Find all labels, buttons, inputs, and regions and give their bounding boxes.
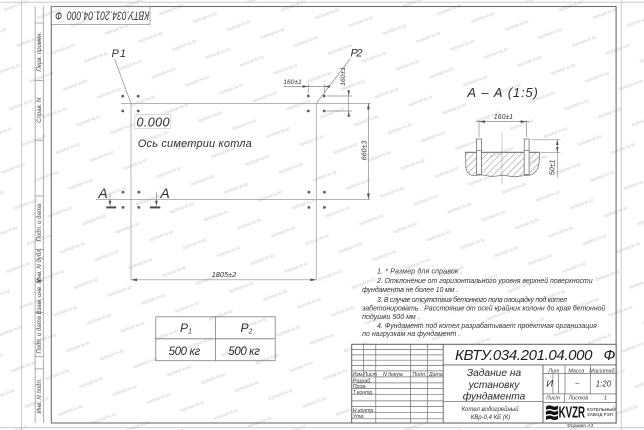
svg-text:фундамента: фундамента — [463, 391, 526, 403]
svg-text:660±3: 660±3 — [362, 141, 369, 161]
svg-text:KVZR: KVZR — [559, 405, 586, 422]
svg-text:Листов: Листов — [568, 396, 589, 402]
svg-text:Перв. примен.: Перв. примен. — [37, 32, 43, 72]
svg-text:Инв. N дубл.: Инв. N дубл. — [37, 248, 43, 283]
svg-text:А: А — [97, 185, 107, 201]
svg-text:P2: P2 — [351, 48, 363, 60]
svg-text:установку: установку — [468, 380, 521, 391]
svg-text:Подп. и дата: Подп. и дата — [37, 315, 43, 353]
svg-text:И: И — [546, 379, 553, 390]
svg-text:Котел водогрейный: Котел водогрейный — [461, 406, 519, 413]
svg-text:Подп. и дата: Подп. и дата — [37, 203, 43, 241]
svg-text:Лит: Лит — [547, 368, 560, 374]
svg-text:Пров.: Пров. — [353, 384, 367, 390]
svg-text:Утв.: Утв. — [353, 414, 365, 420]
svg-text:50±1: 50±1 — [550, 159, 557, 175]
svg-text:Взам. инв. N: Взам. инв. N — [37, 279, 43, 315]
svg-text:160±1: 160±1 — [283, 79, 302, 86]
svg-text:Задание на: Задание на — [467, 368, 522, 379]
svg-text:по нагрузкам на фундамент .: по нагрузкам на фундамент . — [362, 330, 460, 338]
svg-text:КВТУ.034.201.04.000 Ф: КВТУ.034.201.04.000 Ф — [55, 9, 149, 23]
svg-text:1: 1 — [604, 396, 607, 402]
svg-text:подушки 500 мм .: подушки 500 мм . — [362, 313, 420, 321]
svg-text:А: А — [159, 185, 169, 201]
svg-text:Ось симетрии котла: Ось симетрии котла — [138, 138, 252, 150]
svg-text:Лист: Лист — [545, 396, 560, 402]
svg-text:А – А (1:5): А – А (1:5) — [466, 85, 537, 100]
svg-text:Ф: Ф — [604, 347, 616, 364]
svg-text:P1: P1 — [112, 48, 127, 60]
svg-text:Изм.Лист: Изм.Лист — [353, 372, 378, 378]
svg-text:Н.контр.: Н.контр. — [353, 408, 375, 414]
svg-text:КВТУ.034.201.04.000: КВТУ.034.201.04.000 — [455, 347, 593, 364]
svg-text:Справ. N: Справ. N — [37, 97, 43, 123]
svg-text:160±1: 160±1 — [340, 67, 347, 86]
svg-text:1:20: 1:20 — [596, 379, 612, 388]
svg-text:Масса: Масса — [568, 368, 584, 374]
svg-text:Инв. N подл.: Инв. N подл. — [37, 378, 43, 413]
svg-text:4. Фундамент под котел раз: 4. Фундамент под котел разрабатывает про… — [377, 322, 597, 330]
svg-text:1805±2: 1805±2 — [212, 270, 237, 279]
svg-text:500 кг: 500 кг — [169, 346, 201, 358]
svg-text:–: – — [574, 378, 580, 387]
svg-text:Дата: Дата — [428, 372, 443, 378]
svg-text:160±1: 160±1 — [494, 114, 514, 121]
svg-text:0.000: 0.000 — [137, 116, 170, 130]
svg-text:Масштаб: Масштаб — [589, 368, 615, 374]
svg-text:КВр-0,4 КБ (К): КВр-0,4 КБ (К) — [471, 415, 511, 421]
svg-text:Подп.: Подп. — [413, 372, 427, 378]
svg-text:3. В случае отсутствия бет: 3. В случае отсутствия бетонного пола пл… — [377, 296, 567, 304]
svg-text:Т.контр.: Т.контр. — [353, 390, 374, 396]
svg-text:N докум.: N докум. — [383, 372, 404, 378]
svg-text:забетонировать . Расстояние: забетонировать . Расстояние от осей край… — [361, 305, 605, 313]
svg-text:2. Отклонение от горизонтал: 2. Отклонение от горизонтального уровня … — [376, 277, 593, 285]
svg-text:ЗАВОД РЭП: ЗАВОД РЭП — [587, 412, 613, 417]
svg-text:1. * Размер для справок .: 1. * Размер для справок . — [377, 267, 462, 275]
svg-text:Формат А3: Формат А3 — [567, 423, 594, 429]
svg-text:фундамента не более 10 мм: фундамента не более 10 мм . — [362, 286, 458, 294]
svg-text:500 кг: 500 кг — [228, 346, 260, 358]
